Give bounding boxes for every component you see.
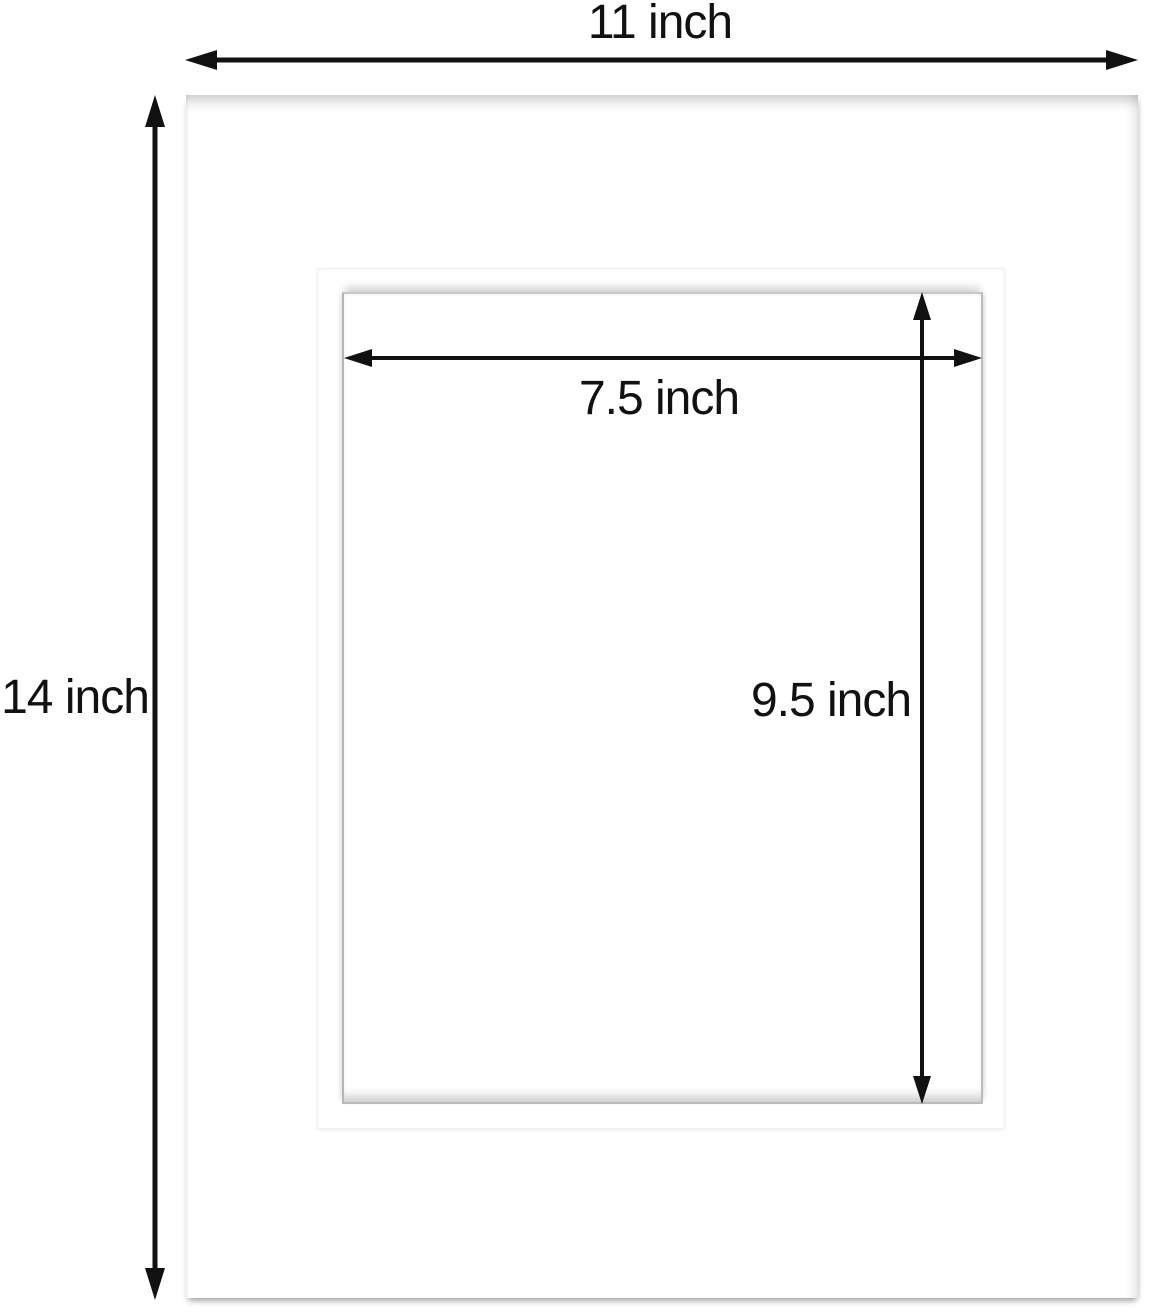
opening-width-label: 7.5 inch bbox=[409, 377, 909, 421]
opening-height-label: 9.5 inch bbox=[581, 679, 1081, 723]
diagram-canvas: 11 inch 14 inch 7.5 inch 9.5 inch bbox=[0, 0, 1152, 1315]
outer-width-label: 11 inch bbox=[410, 1, 910, 45]
outer-width-arrow-icon bbox=[185, 50, 1138, 70]
outer-height-label: 14 inch bbox=[0, 676, 150, 720]
